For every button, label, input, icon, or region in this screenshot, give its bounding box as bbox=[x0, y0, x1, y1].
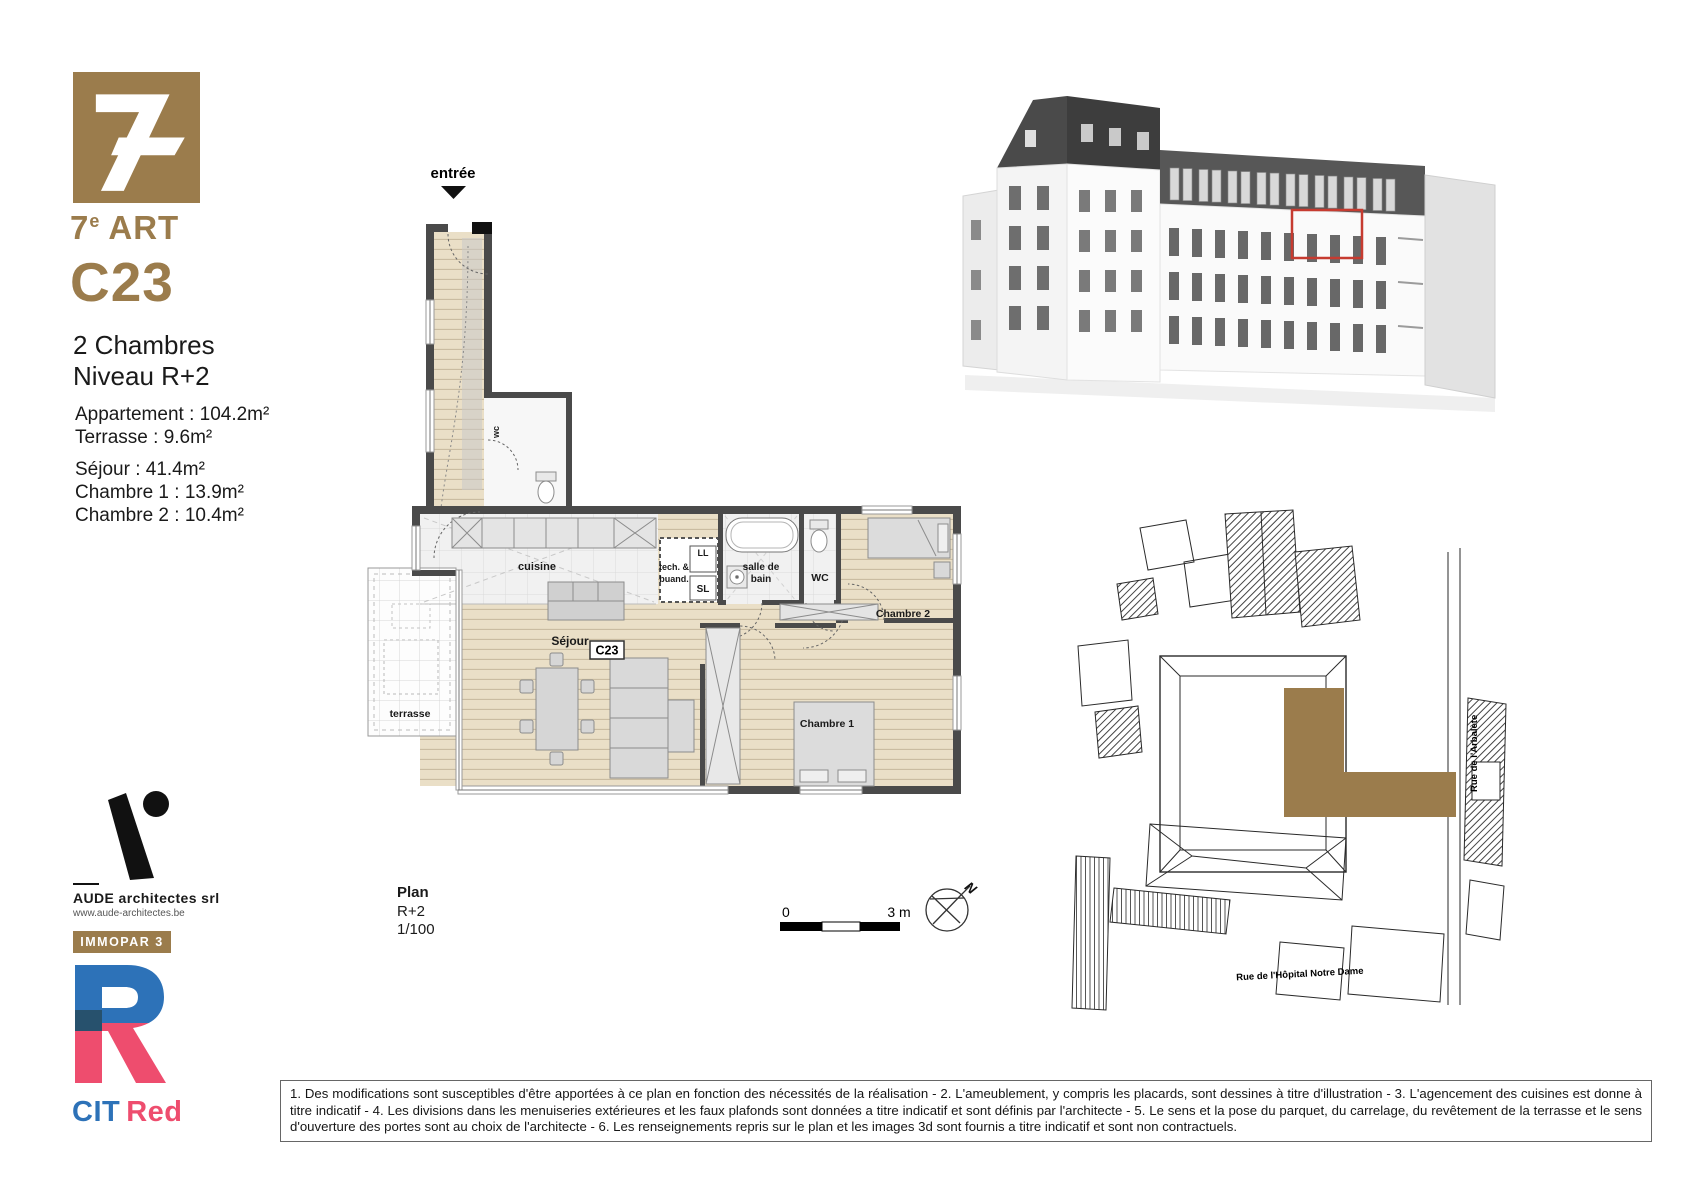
plan-caption: Plan R+2 1/100 bbox=[397, 884, 435, 940]
render-tower bbox=[997, 96, 1160, 382]
room-label-tech-1: tech. & bbox=[659, 562, 690, 572]
brand-name-number: 7 bbox=[70, 209, 89, 246]
architect-website: www.aude-architectes.be bbox=[73, 908, 185, 919]
scale-max: 3 m bbox=[887, 904, 910, 920]
plan-caption-title: Plan bbox=[397, 884, 435, 903]
render-right-wall bbox=[1425, 175, 1495, 398]
room-label-wc: WC bbox=[811, 572, 829, 584]
room-label-cuisine: cuisine bbox=[518, 561, 556, 573]
brand-name-sup: e bbox=[89, 211, 100, 231]
street-label-arbalete: Rue de l'Arbalète bbox=[1469, 715, 1480, 792]
scale-bar: 0 3 m bbox=[780, 904, 911, 931]
aude-architectes-logo-icon bbox=[100, 790, 172, 882]
appliance-label-sl: SL bbox=[697, 584, 710, 595]
citred-logo-icon bbox=[75, 965, 167, 1083]
north-label: N bbox=[962, 878, 978, 897]
legal-disclaimer: 1. Des modifications sont susceptibles d… bbox=[280, 1080, 1652, 1142]
room-label-sejour: Séjour bbox=[551, 634, 589, 648]
room-label-tech-2: buand. bbox=[659, 574, 689, 584]
unit-description: 2 Chambres Niveau R+2 bbox=[73, 330, 215, 392]
area-line: Chambre 2 : 10.4m² bbox=[75, 504, 244, 527]
plan-caption-scale: 1/100 bbox=[397, 921, 435, 940]
unit-tag-label: C23 bbox=[596, 644, 619, 658]
unit-level: Niveau R+2 bbox=[73, 361, 215, 392]
floor-plan: entrée bbox=[358, 155, 978, 1015]
room-label-chambre1: Chambre 1 bbox=[800, 718, 854, 730]
citred-wordmark: CITRed bbox=[72, 1096, 183, 1129]
seven-glyph-icon bbox=[73, 72, 200, 203]
render-main-building bbox=[1160, 150, 1425, 376]
room-label-wc-small: wc bbox=[491, 426, 501, 439]
room-label-bath-1: salle de bbox=[743, 562, 780, 573]
area-line: Terrasse : 9.6m² bbox=[75, 426, 269, 449]
brand-name-word: ART bbox=[108, 209, 179, 246]
area-line: Chambre 1 : 13.9m² bbox=[75, 481, 244, 504]
divider bbox=[73, 883, 99, 885]
north-compass-icon: N bbox=[926, 878, 978, 931]
unit-areas-main: Appartement : 104.2m² Terrasse : 9.6m² bbox=[75, 403, 269, 449]
appliance-label-ll: LL bbox=[698, 548, 709, 558]
brochure-page: { "brand": { "name_num": "7", "name_sup"… bbox=[0, 0, 1697, 1200]
entry-label: entrée bbox=[430, 165, 475, 182]
cit-text: CIT bbox=[72, 1096, 120, 1128]
street-label-hopital: Rue de l'Hôpital Notre Dame bbox=[1236, 966, 1364, 984]
brand-name: 7eART bbox=[70, 209, 179, 247]
unit-location-marker bbox=[1284, 688, 1456, 817]
area-line: Séjour : 41.4m² bbox=[75, 458, 244, 481]
plan-caption-level: R+2 bbox=[397, 903, 435, 922]
room-label-bath-2: bain bbox=[751, 574, 772, 585]
brand-logo bbox=[73, 72, 200, 203]
area-line: Appartement : 104.2m² bbox=[75, 403, 269, 426]
building-render-3d bbox=[955, 80, 1505, 480]
unit-areas-rooms: Séjour : 41.4m² Chambre 1 : 13.9m² Chamb… bbox=[75, 458, 244, 527]
site-plan: Rue de l'Arbalète Rue de l'Hôpital Notre… bbox=[1060, 508, 1520, 1013]
red-text: Red bbox=[126, 1096, 182, 1128]
scale-zero: 0 bbox=[782, 904, 790, 920]
room-label-chambre2: Chambre 2 bbox=[876, 608, 930, 620]
immopar-badge: IMMOPAR 3 bbox=[73, 931, 171, 953]
entry-arrow-icon bbox=[441, 186, 466, 199]
architect-name: AUDE architectes srl bbox=[73, 890, 220, 906]
unit-code: C23 bbox=[70, 250, 174, 314]
unit-bedrooms: 2 Chambres bbox=[73, 330, 215, 361]
room-label-terrasse: terrasse bbox=[390, 708, 431, 720]
